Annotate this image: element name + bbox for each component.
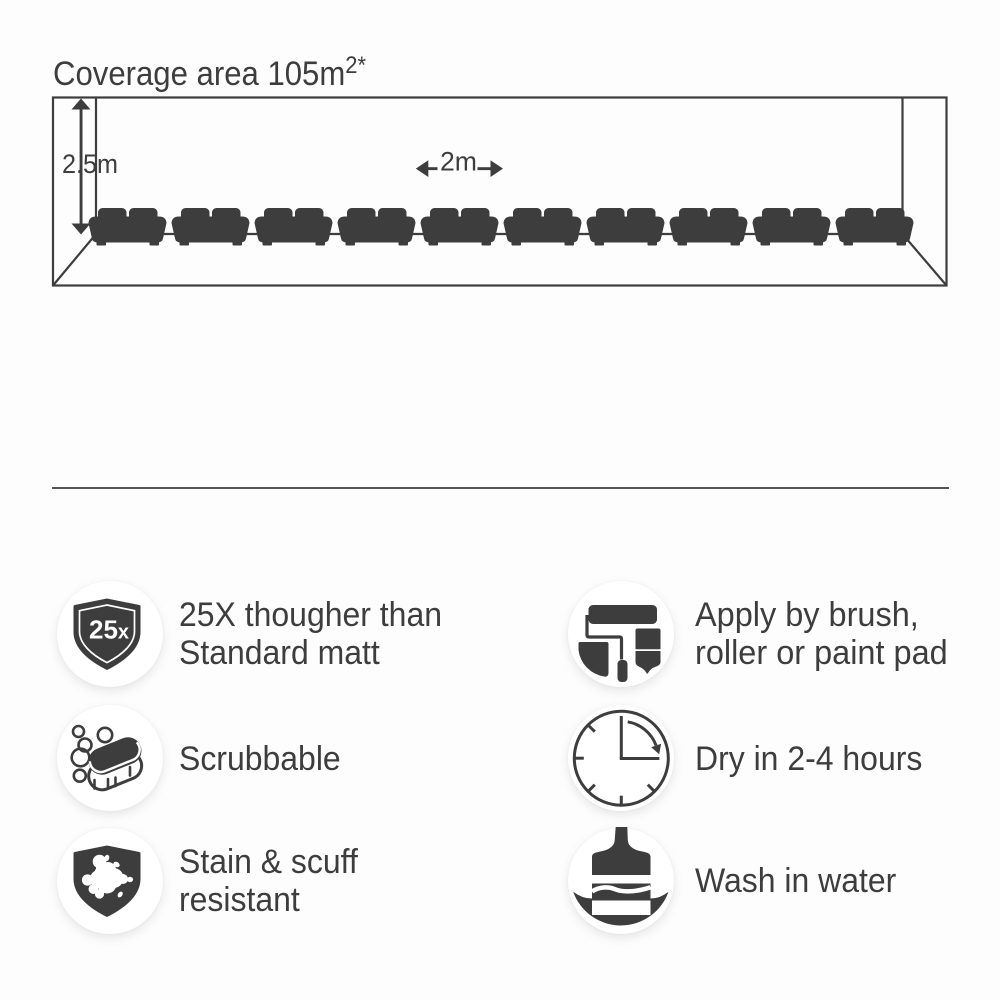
svg-text:2m: 2m — [440, 147, 477, 177]
svg-text:2.5m: 2.5m — [62, 149, 118, 179]
